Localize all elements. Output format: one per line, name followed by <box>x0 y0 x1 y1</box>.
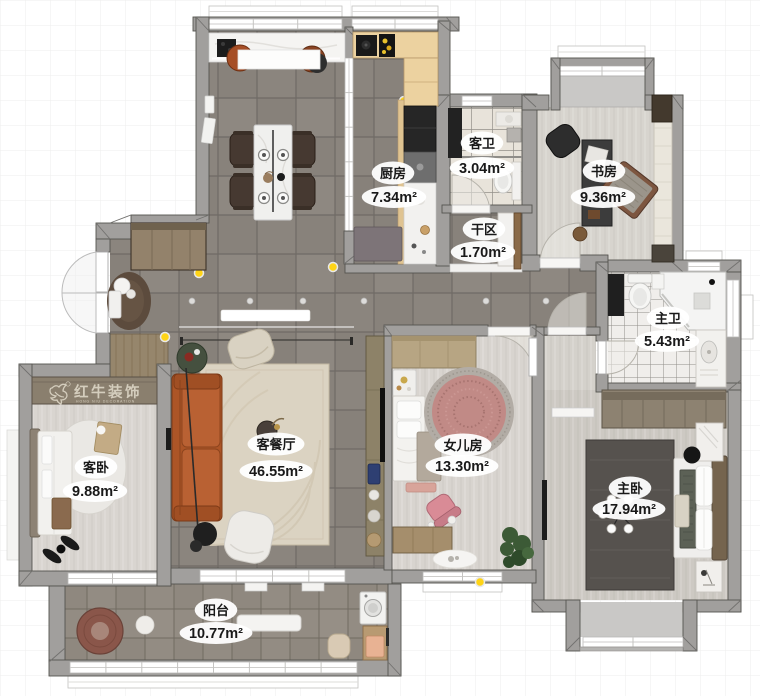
svg-text:主卧: 主卧 <box>617 481 643 496</box>
svg-text:10.77m²: 10.77m² <box>189 626 243 642</box>
svg-text:客卧: 客卧 <box>83 460 109 475</box>
svg-text:客卫: 客卫 <box>469 136 495 151</box>
svg-text:1.70m²: 1.70m² <box>460 245 506 261</box>
svg-text:9.36m²: 9.36m² <box>580 190 626 206</box>
svg-text:17.94m²: 17.94m² <box>602 502 656 518</box>
svg-text:客餐厅: 客餐厅 <box>256 437 295 452</box>
svg-text:46.55m²: 46.55m² <box>249 464 303 480</box>
svg-text:7.34m²: 7.34m² <box>371 190 417 206</box>
svg-text:HONG NIU DECORATION: HONG NIU DECORATION <box>76 400 135 404</box>
svg-text:书房: 书房 <box>591 164 617 179</box>
svg-text:女儿房: 女儿房 <box>443 438 482 453</box>
svg-text:阳台: 阳台 <box>203 603 229 618</box>
svg-text:9.88m²: 9.88m² <box>72 484 118 500</box>
svg-text:3.04m²: 3.04m² <box>459 161 505 177</box>
svg-text:厨房: 厨房 <box>380 166 406 181</box>
svg-text:13.30m²: 13.30m² <box>435 459 489 475</box>
svg-text:5.43m²: 5.43m² <box>644 334 690 350</box>
svg-text:干区: 干区 <box>471 222 497 237</box>
svg-text:红牛装饰: 红牛装饰 <box>74 383 142 401</box>
svg-text:主卫: 主卫 <box>655 311 681 326</box>
